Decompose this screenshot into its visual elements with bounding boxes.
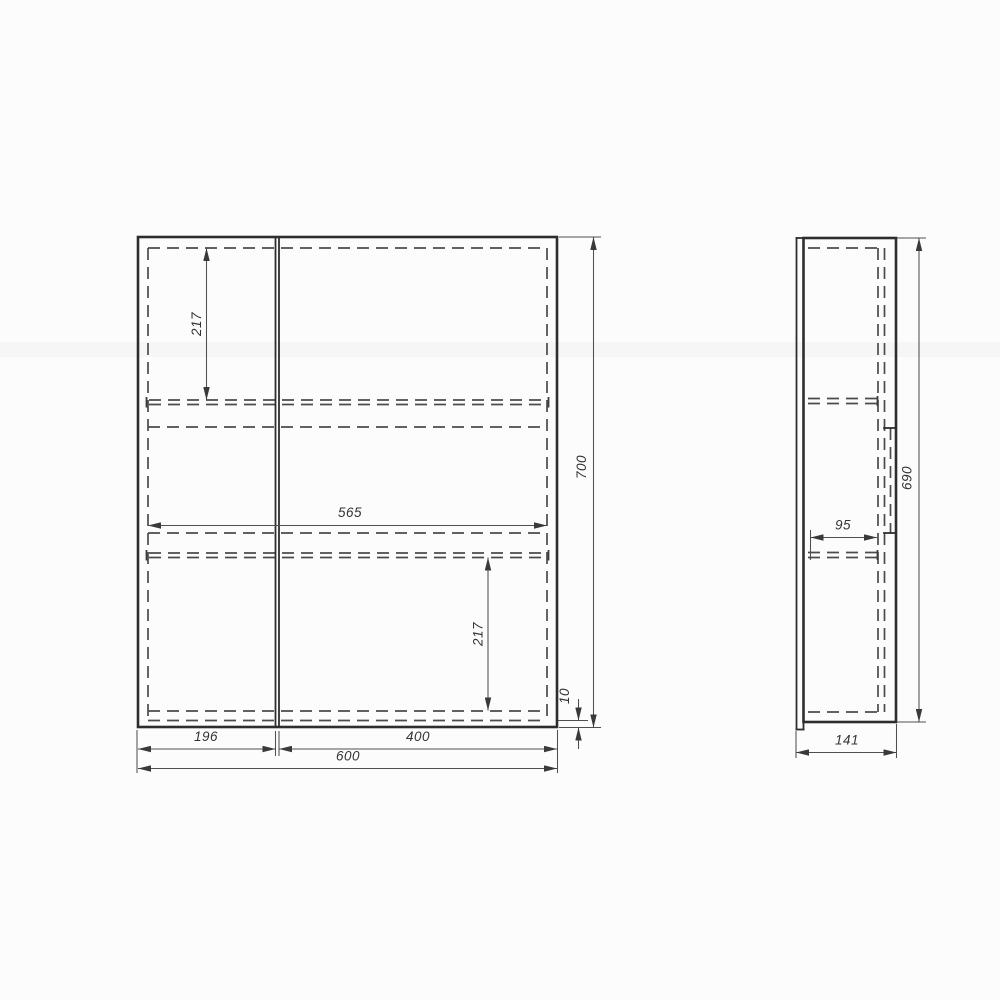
cabinet-side-body-outline — [804, 238, 897, 722]
dim-upper-shelf-offset: 217 — [189, 312, 204, 337]
dim-left-door-width: 196 — [194, 729, 218, 744]
side-view: 95 690 141 — [796, 238, 926, 758]
dim-overall-height: 700 — [574, 455, 589, 479]
dim-shelf-width: 565 — [338, 505, 362, 520]
side-view-outline — [797, 238, 897, 730]
scan-artifact-band — [0, 342, 1000, 357]
side-view-dimensions: 95 690 141 — [796, 238, 926, 758]
technical-drawing-canvas: 217 565 217 10 700 196 4 — [0, 0, 1000, 1000]
cabinet-front-outline — [138, 237, 557, 727]
drawing-sheet: 217 565 217 10 700 196 4 — [0, 0, 1000, 1000]
dim-shelf-depth: 95 — [835, 518, 851, 533]
dim-bottom-clearance: 10 — [557, 688, 572, 704]
front-view: 217 565 217 10 700 196 4 — [137, 237, 601, 773]
dim-body-height: 690 — [900, 466, 915, 490]
side-view-hidden-lines — [808, 248, 891, 712]
front-view-outline — [138, 237, 557, 727]
dim-lower-shelf-offset: 217 — [471, 622, 486, 647]
dim-overall-width: 600 — [336, 749, 360, 764]
dim-overall-depth: 141 — [835, 733, 859, 748]
dim-right-door-width: 400 — [406, 729, 430, 744]
front-view-dimensions: 217 565 217 10 700 196 4 — [137, 237, 601, 773]
